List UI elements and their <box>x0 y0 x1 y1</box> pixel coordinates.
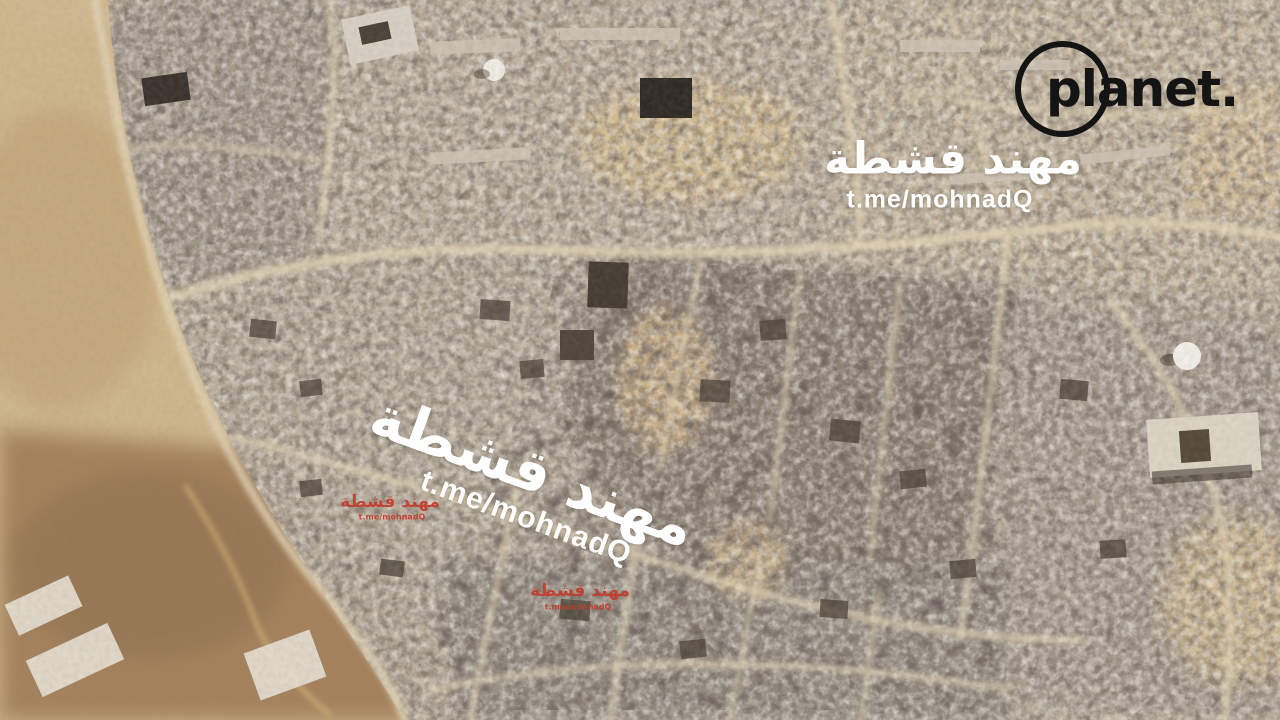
satellite-terrain-image <box>0 0 1280 720</box>
satellite-screenshot: مهند قشطة t.me/mohnadQ مهند قشطة t.me/mo… <box>0 0 1280 720</box>
